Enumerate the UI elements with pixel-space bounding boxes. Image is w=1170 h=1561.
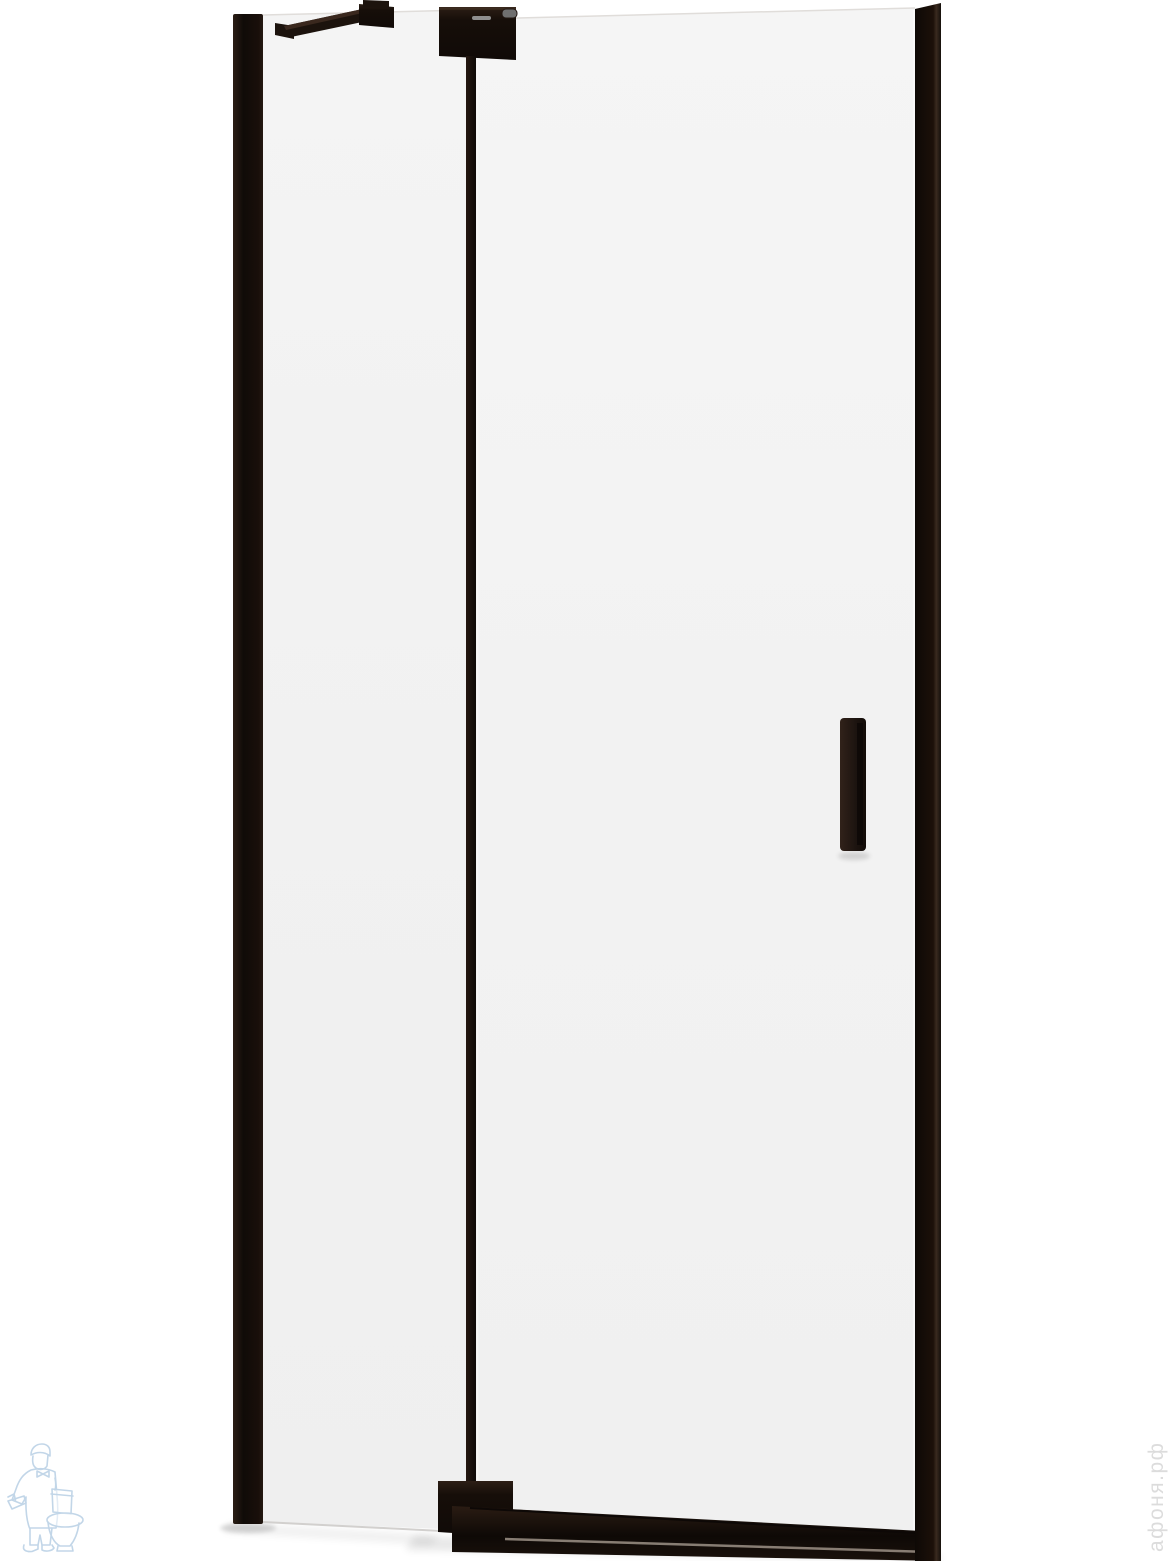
top-hinge [439,7,517,60]
top-hinge-slot [472,16,491,20]
door-handle [838,718,870,860]
wall-profile [233,14,263,1524]
store-watermark-text: афоня.рф [1145,1442,1168,1552]
handle-shadow [838,852,870,860]
stabilizer-top-tab [363,0,389,8]
shower-door-rendering: афоня.рф [0,0,1170,1561]
wall-profile-shadow [220,1523,276,1533]
handle-inner-shade [857,723,863,845]
toilet-tank [51,1489,73,1514]
right-profile [915,3,941,1561]
toilet-rim [47,1513,83,1527]
product-image: афоня.рф [0,0,1170,1561]
top-hinge-pin [502,9,517,18]
fixed-panel-glass [263,10,466,1530]
hinge-profile [466,56,476,1484]
plumber-arm-on-tank [55,1478,56,1490]
